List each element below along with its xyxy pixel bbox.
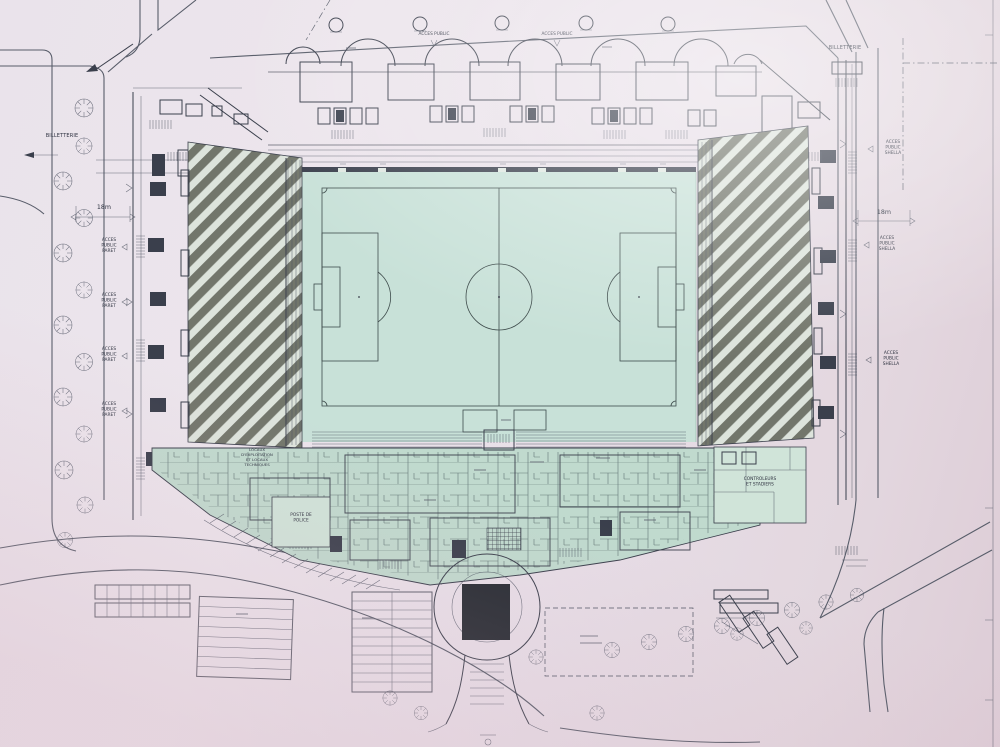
acces-paret-label: ACCESPUBLICPARET <box>101 346 116 363</box>
acces-shella-label: ACCESPUBLICSHELLA <box>883 350 900 367</box>
acces-paret-label: ACCESPUBLICPARET <box>101 237 116 254</box>
east-stand <box>698 126 822 446</box>
billetterie-left-label: BILLETTERIE <box>46 133 79 139</box>
acces-shella-labels: ACCESPUBLICSHELLA ACCESPUBLICSHELLA ACCE… <box>864 139 901 367</box>
parking-west <box>95 585 432 692</box>
billetterie-right-label: BILLETTERIE <box>829 45 862 51</box>
acces-paret-label: ACCESPUBLICPARET <box>101 401 116 418</box>
west-stand <box>181 142 302 448</box>
acces-shella-label: ACCESPUBLICSHELLA <box>885 139 902 156</box>
dim-18m-right: 18m <box>877 209 891 216</box>
bus-zone <box>545 590 798 676</box>
acces-top-label: ACCES PUBLIC <box>418 31 449 37</box>
acces-paret-label: ACCESPUBLICPARET <box>101 292 116 309</box>
acces-paret-labels: ACCESPUBLICPARET ACCESPUBLICPARET ACCESP… <box>101 237 127 418</box>
dark-block <box>462 584 510 640</box>
site-plan-photo: BILLETTERIE BILLETTERIE 18m 18m ACCES PU… <box>0 0 1000 747</box>
dim-18m-left: 18m <box>97 204 111 211</box>
pitch-zone <box>302 172 696 442</box>
stadium-site-plan: BILLETTERIE BILLETTERIE 18m 18m ACCES PU… <box>0 0 1000 747</box>
controleurs-label: CONTROLEURSET STADIERS <box>744 476 777 488</box>
acces-top-label: ACCES PUBLIC <box>541 31 572 37</box>
acces-shella-label: ACCESPUBLICSHELLA <box>879 235 896 252</box>
